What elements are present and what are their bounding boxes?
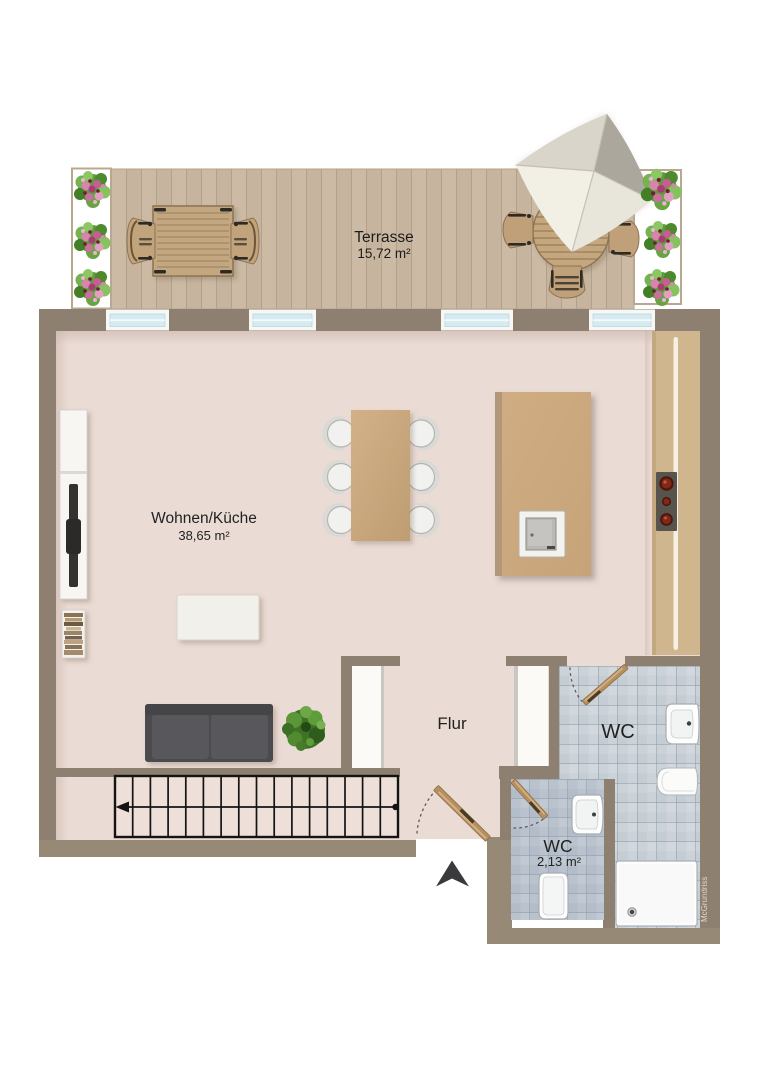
- svg-text:15,72 m²: 15,72 m²: [357, 246, 411, 261]
- svg-text:Flur: Flur: [437, 714, 467, 733]
- svg-text:2,13 m²: 2,13 m²: [537, 854, 582, 869]
- svg-text:38,65 m²: 38,65 m²: [178, 528, 230, 543]
- svg-text:WC: WC: [543, 836, 572, 856]
- svg-text:Wohnen/Küche: Wohnen/Küche: [151, 510, 257, 527]
- svg-text:McGrundriss: McGrundriss: [700, 877, 709, 922]
- svg-text:WC: WC: [601, 721, 634, 743]
- svg-text:Terrasse: Terrasse: [354, 229, 413, 246]
